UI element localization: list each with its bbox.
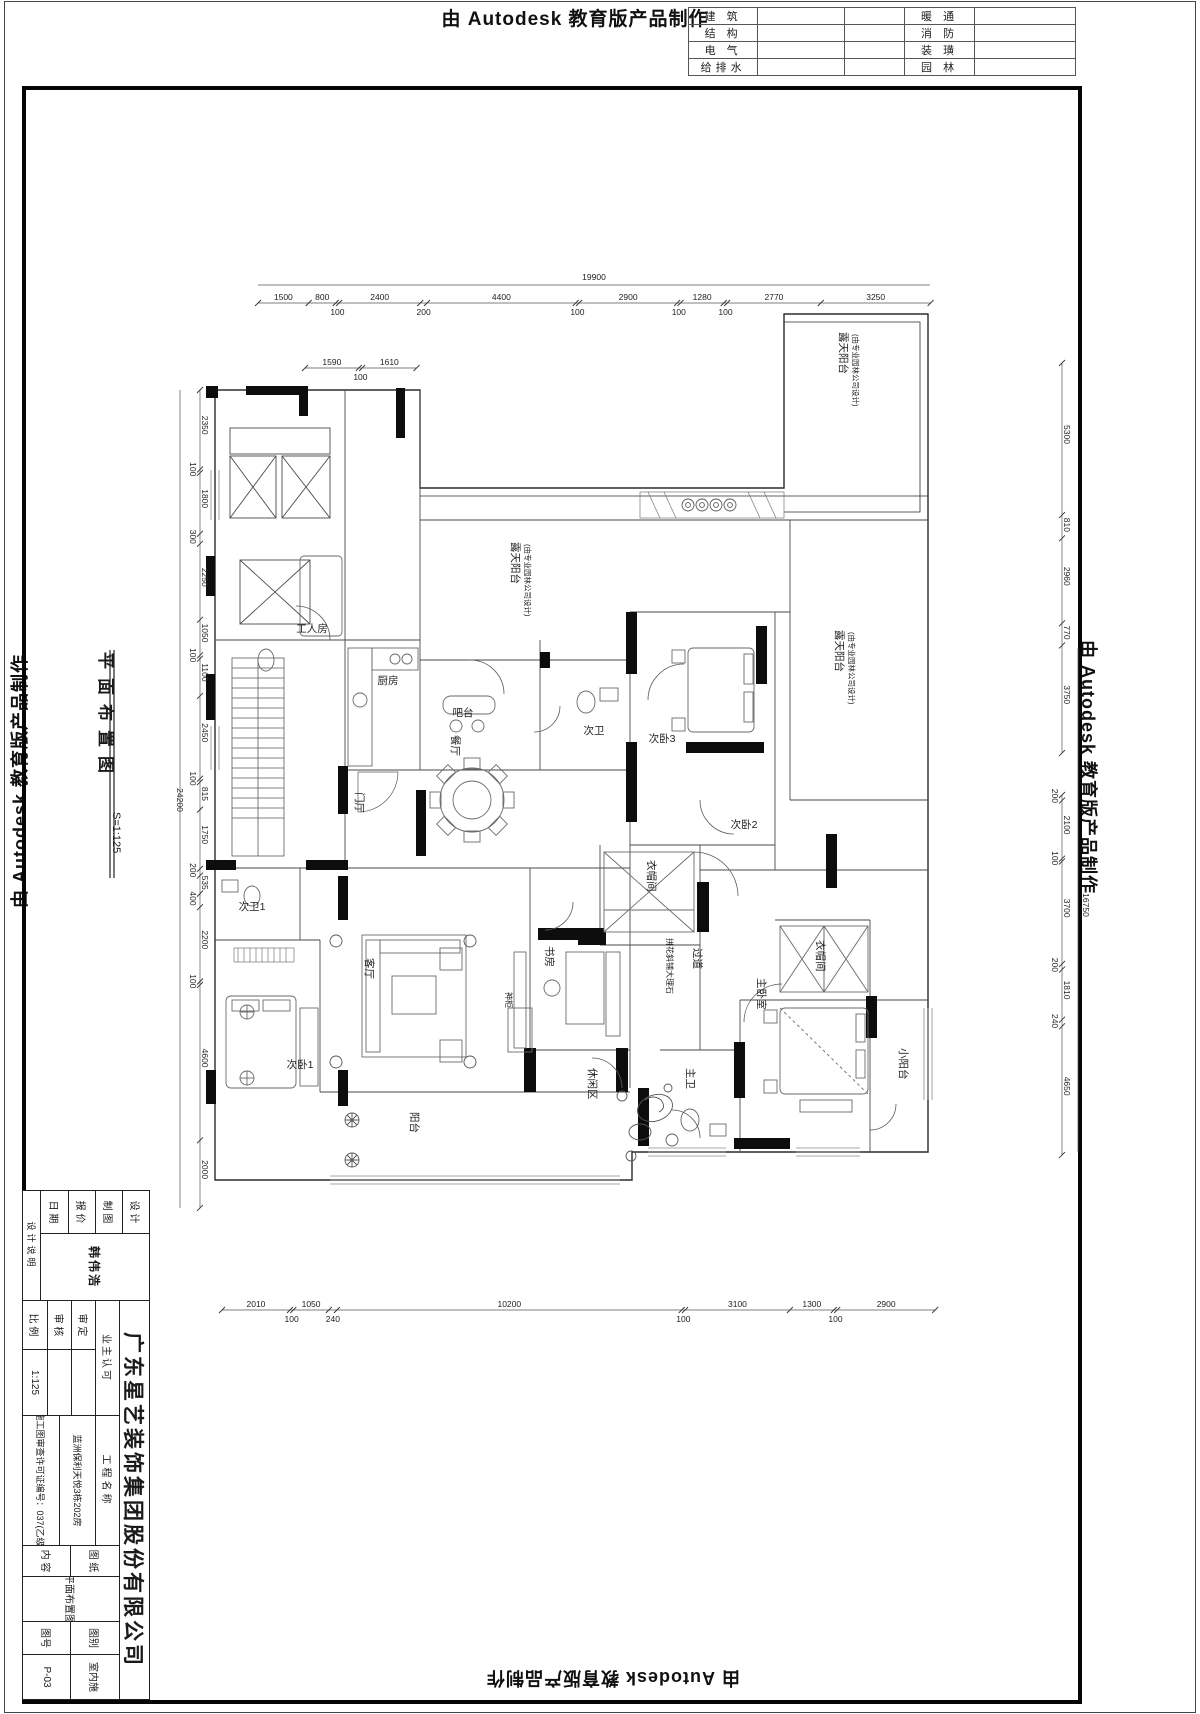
dim-label: 1100 <box>200 663 210 682</box>
room-label: 客厅 <box>363 958 376 979</box>
dim-label: 2100 <box>1062 816 1072 835</box>
dim-label: 3700 <box>1062 899 1072 918</box>
dim-label: 100 <box>188 648 198 662</box>
dim-label: 100 <box>330 307 344 317</box>
dim-label: 2400 <box>370 292 389 302</box>
dim-total-label: 19900 <box>582 272 606 282</box>
dim-label: 100 <box>676 1314 690 1324</box>
dim-label: 810 <box>1062 518 1072 532</box>
dim-label: 2770 <box>764 292 783 302</box>
tb-label-date: 日 期 <box>40 1190 69 1234</box>
tb-number-label: 图号 <box>22 1621 71 1655</box>
dim-label: 100 <box>570 307 584 317</box>
room-label: 次卫 <box>584 724 605 737</box>
dim-label: 1300 <box>802 1299 821 1309</box>
dim-label: 10200 <box>497 1299 521 1309</box>
tb-label-draft: 制 图 <box>95 1190 123 1234</box>
tb-label-checked: 审 核 <box>47 1300 72 1350</box>
interior-partitions <box>215 390 928 1152</box>
room-label: (由专业园林公司设计) <box>851 334 861 407</box>
dim-label: 2450 <box>200 723 210 742</box>
room-label: 拼花斜铺大理石 <box>665 938 675 994</box>
dim-total-label: 16750 <box>1081 893 1091 917</box>
room-label: 阳台 <box>408 1112 421 1133</box>
room-label: 吧台 <box>453 706 474 719</box>
tb-category-value: 室内施 <box>70 1654 120 1700</box>
tb-draftsman-name: 韩伟浩 <box>40 1233 150 1301</box>
room-label: (由专业园林公司设计) <box>847 632 857 705</box>
room-label: 次卧2 <box>731 818 758 831</box>
dim-label: 100 <box>188 771 198 785</box>
room-label: 衣帽间 <box>645 860 658 892</box>
tb-permit-number: 施工图审查许可证编号：037(乙级) <box>22 1415 60 1546</box>
dim-label: 2200 <box>200 930 210 949</box>
title-block: 设 计 制 图 报 价 日 期 韩伟浩 设计说明 广东星艺装饰集团股份有限公司 … <box>22 1190 150 1700</box>
dim-label: 1810 <box>1062 981 1072 1000</box>
dim-label: 100 <box>353 372 367 382</box>
tb-category-label: 图别 <box>70 1621 120 1655</box>
dim-label: 100 <box>188 974 198 988</box>
room-label: 主卧室 <box>755 978 768 1010</box>
room-label: 主卫 <box>684 1068 696 1089</box>
dim-label: 4650 <box>1062 1077 1072 1096</box>
tb-company-name: 广东星艺装饰集团股份有限公司 <box>119 1300 150 1700</box>
tb-owner-approval: 业主认可 <box>95 1300 120 1416</box>
drawing-sheet: 由 Autodesk 教育版产品制作 由 Autodesk 教育版产品制作 由 … <box>0 0 1200 1714</box>
room-label: (由专业园林公司设计) <box>523 544 533 617</box>
tb-sheet-label: 图 纸 <box>70 1545 120 1577</box>
tb-number-value: P-03 <box>22 1654 71 1700</box>
dim-label: 200 <box>188 863 198 877</box>
room-label: 衣帽间 <box>814 940 827 972</box>
dim-label: 770 <box>1062 625 1072 639</box>
dim-label: 2250 <box>200 568 210 587</box>
room-label: 餐厅 <box>449 735 462 756</box>
tb-content-label: 内 容 <box>22 1545 71 1577</box>
dim-total-label: 24200 <box>175 788 185 812</box>
room-label: 工人房 <box>296 622 328 635</box>
dim-label: 1610 <box>380 357 399 367</box>
room-label: 神柜 <box>504 992 514 1008</box>
dim-label: 2900 <box>619 292 638 302</box>
dim-label: 400 <box>188 891 198 905</box>
dim-label: 100 <box>672 307 686 317</box>
dim-label: 1500 <box>274 292 293 302</box>
dim-label: 2000 <box>200 1160 210 1179</box>
dim-label: 3100 <box>728 1299 747 1309</box>
dim-label: 3750 <box>1062 685 1072 704</box>
room-label: 露天阳台 <box>509 542 522 584</box>
dim-label: 240 <box>1050 1014 1060 1028</box>
tb-label-scale: 比 例 <box>22 1300 48 1350</box>
room-label: 厨房 <box>378 674 399 687</box>
dim-label: 535 <box>200 876 210 890</box>
room-label: 次卧1 <box>287 1058 314 1071</box>
dim-label: 200 <box>417 307 431 317</box>
room-label: 露天阳台 <box>837 332 850 374</box>
dim-label: 100 <box>188 462 198 476</box>
dim-label: 815 <box>200 787 210 801</box>
dim-label: 2350 <box>200 416 210 435</box>
dim-label: 200 <box>1050 789 1060 803</box>
room-label: 书房 <box>543 946 556 967</box>
dim-label: 1750 <box>200 825 210 844</box>
room-label: 露天阳台 <box>833 630 846 672</box>
dim-label: 100 <box>718 307 732 317</box>
tb-label-quote: 报 价 <box>68 1190 96 1234</box>
dim-label: 2960 <box>1062 567 1072 586</box>
dim-label: 300 <box>188 530 198 544</box>
room-label: 休闲区 <box>586 1068 599 1100</box>
dim-label: 1050 <box>200 624 210 643</box>
dining-table <box>430 758 514 842</box>
dim-label: 100 <box>285 1314 299 1324</box>
floor-plan: 露天阳台(由专业园林公司设计)露天阳台(由专业园林公司设计)露天阳台(由专业园林… <box>0 0 1200 1714</box>
dim-label: 2900 <box>877 1299 896 1309</box>
dim-label: 2010 <box>247 1299 266 1309</box>
dim-label: 1800 <box>200 489 210 508</box>
tb-label-design: 设 计 <box>122 1190 150 1234</box>
dim-label: 1050 <box>302 1299 321 1309</box>
dim-label: 800 <box>315 292 329 302</box>
windows <box>211 470 932 1184</box>
dim-label: 3250 <box>866 292 885 302</box>
tb-project-value: 蓝洲保利天悦3栋202房 <box>59 1415 96 1546</box>
dim-label: 100 <box>828 1314 842 1324</box>
tb-sheet-content-value: 平面布置图 <box>22 1576 120 1622</box>
room-label: 次卧3 <box>649 732 676 745</box>
dim-label: 100 <box>1050 851 1060 865</box>
dim-label: 1590 <box>322 357 341 367</box>
elevator-core <box>230 428 330 624</box>
room-label: 小阳台 <box>897 1048 910 1080</box>
tb-label-approved: 审 定 <box>71 1300 96 1350</box>
tb-project-label: 工程名称 <box>95 1415 120 1546</box>
dim-label: 1280 <box>693 292 712 302</box>
dim-label: 4600 <box>200 1049 210 1068</box>
staircase <box>232 658 284 856</box>
dim-label: 4400 <box>492 292 511 302</box>
dim-label: 240 <box>326 1314 340 1324</box>
dim-label: 5300 <box>1062 425 1072 444</box>
tb-scale-value: 1:125 <box>22 1349 48 1416</box>
planter-flowers <box>682 499 736 511</box>
room-label: 次卫1 <box>239 900 266 913</box>
title-underline <box>110 650 114 878</box>
dim-label: 200 <box>1050 958 1060 972</box>
room-label: 过道 <box>691 948 704 969</box>
ceiling-symbol <box>240 1005 254 1085</box>
tb-design-note: 设计说明 <box>22 1190 41 1301</box>
structural-walls <box>206 386 877 1149</box>
room-label: 门厅 <box>353 792 366 813</box>
